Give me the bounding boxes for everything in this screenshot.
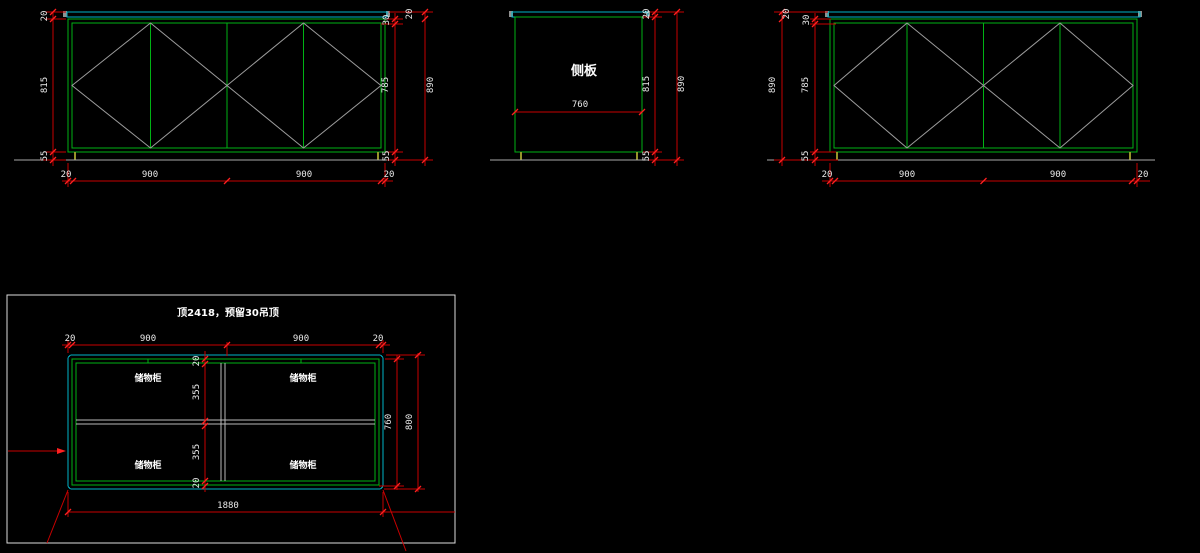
front-elevation-right: 20 890 30 785 55 20 900 900 20 — [767, 9, 1155, 187]
dim-top-20: 20 — [65, 334, 76, 344]
dim-plinth-height: 55 — [642, 151, 652, 162]
cabinet-feet — [75, 152, 378, 160]
side-panel-outline — [515, 17, 642, 152]
dim-door-height: 785 — [801, 77, 811, 93]
dimension-lines — [53, 12, 425, 181]
storage-cell-label: 储物柜 — [289, 459, 316, 471]
leader-arrowhead — [57, 448, 66, 454]
shelf-dividers — [76, 363, 375, 481]
countertop-outline — [512, 12, 648, 17]
dim-top-900: 900 — [140, 334, 156, 344]
dim-depth: 760 — [572, 100, 588, 110]
dim-bottom-20: 20 — [822, 170, 833, 180]
front-left-structure — [14, 11, 425, 160]
dim-depth-inner: 760 — [384, 414, 394, 430]
storage-cell-label: 储物柜 — [134, 372, 161, 384]
storage-cell-label: 储物柜 — [134, 459, 161, 471]
dim-counter-thickness: 20 — [40, 11, 50, 22]
countertop-outline — [828, 12, 1140, 17]
side-structure — [490, 11, 684, 166]
cabinet-feet — [837, 152, 1130, 160]
dim-total-height: 890 — [677, 76, 687, 92]
dim-top-20: 20 — [373, 334, 384, 344]
leader-lines — [47, 490, 406, 551]
door-gap-marks — [148, 359, 301, 363]
dim-total-height: 890 — [426, 77, 436, 93]
side-panel-label: 侧板 — [571, 63, 598, 79]
dim-bottom-900: 900 — [1050, 170, 1066, 180]
dim-bottom-900: 900 — [296, 170, 312, 180]
dimension-arrows — [779, 9, 1140, 184]
dim-counter-thickness: 20 — [782, 9, 792, 20]
dim-plinth-height: 55 — [40, 151, 50, 162]
dim-bottom-20: 20 — [61, 170, 72, 180]
dim-total-height: 890 — [768, 77, 778, 93]
dim-counter-thickness: 20 — [405, 9, 415, 20]
storage-cell-label: 储物柜 — [289, 372, 316, 384]
side-panel-view: 侧板 760 20 815 55 890 — [490, 9, 687, 166]
dim-counter-thickness: 20 — [642, 9, 652, 20]
dim-body-height: 815 — [40, 77, 50, 93]
dim-chain-20: 20 — [192, 356, 202, 367]
dim-chain-20: 20 — [192, 478, 202, 489]
cabinet-feet — [521, 152, 637, 160]
dim-bottom-900: 900 — [899, 170, 915, 180]
dim-chain-355: 355 — [192, 444, 202, 460]
dim-total-width: 1880 — [217, 501, 239, 511]
front-right-structure — [767, 11, 1155, 160]
dim-top-900: 900 — [293, 334, 309, 344]
extension-lines — [8, 340, 425, 517]
dim-top-rail: 30 — [382, 15, 392, 26]
dim-chain-355: 355 — [192, 384, 202, 400]
extension-lines — [40, 12, 433, 187]
dim-plinth-height: 55 — [801, 151, 811, 162]
dimension-lines — [515, 12, 677, 166]
dim-top-rail: 30 — [802, 15, 812, 26]
drawing-canvas[interactable]: 20 815 55 30 785 55 20 890 20 900 900 20… — [0, 0, 1200, 553]
extension-lines — [774, 12, 1137, 187]
cad-drawing-stage: 20 815 55 30 785 55 20 890 20 900 900 20… — [0, 0, 1200, 553]
dim-depth-outer: 800 — [405, 414, 415, 430]
countertop-outline — [67, 12, 387, 17]
dim-door-height: 785 — [381, 77, 391, 93]
plan-view: 顶2418，预留30吊顶 20 900 900 20 储物柜 储物柜 储物柜 储… — [7, 295, 455, 551]
front-elevation-left: 20 815 55 30 785 55 20 890 20 900 900 20 — [14, 9, 436, 187]
dim-bottom-900: 900 — [142, 170, 158, 180]
front-left-dim-lines — [40, 12, 433, 187]
dim-body-height: 815 — [642, 76, 652, 92]
plan-title: 顶2418，预留30吊顶 — [177, 306, 279, 319]
dim-bottom-20: 20 — [384, 170, 395, 180]
dim-plinth-height: 55 — [382, 151, 392, 162]
dimension-arrows — [50, 9, 428, 184]
dim-bottom-20: 20 — [1138, 170, 1149, 180]
